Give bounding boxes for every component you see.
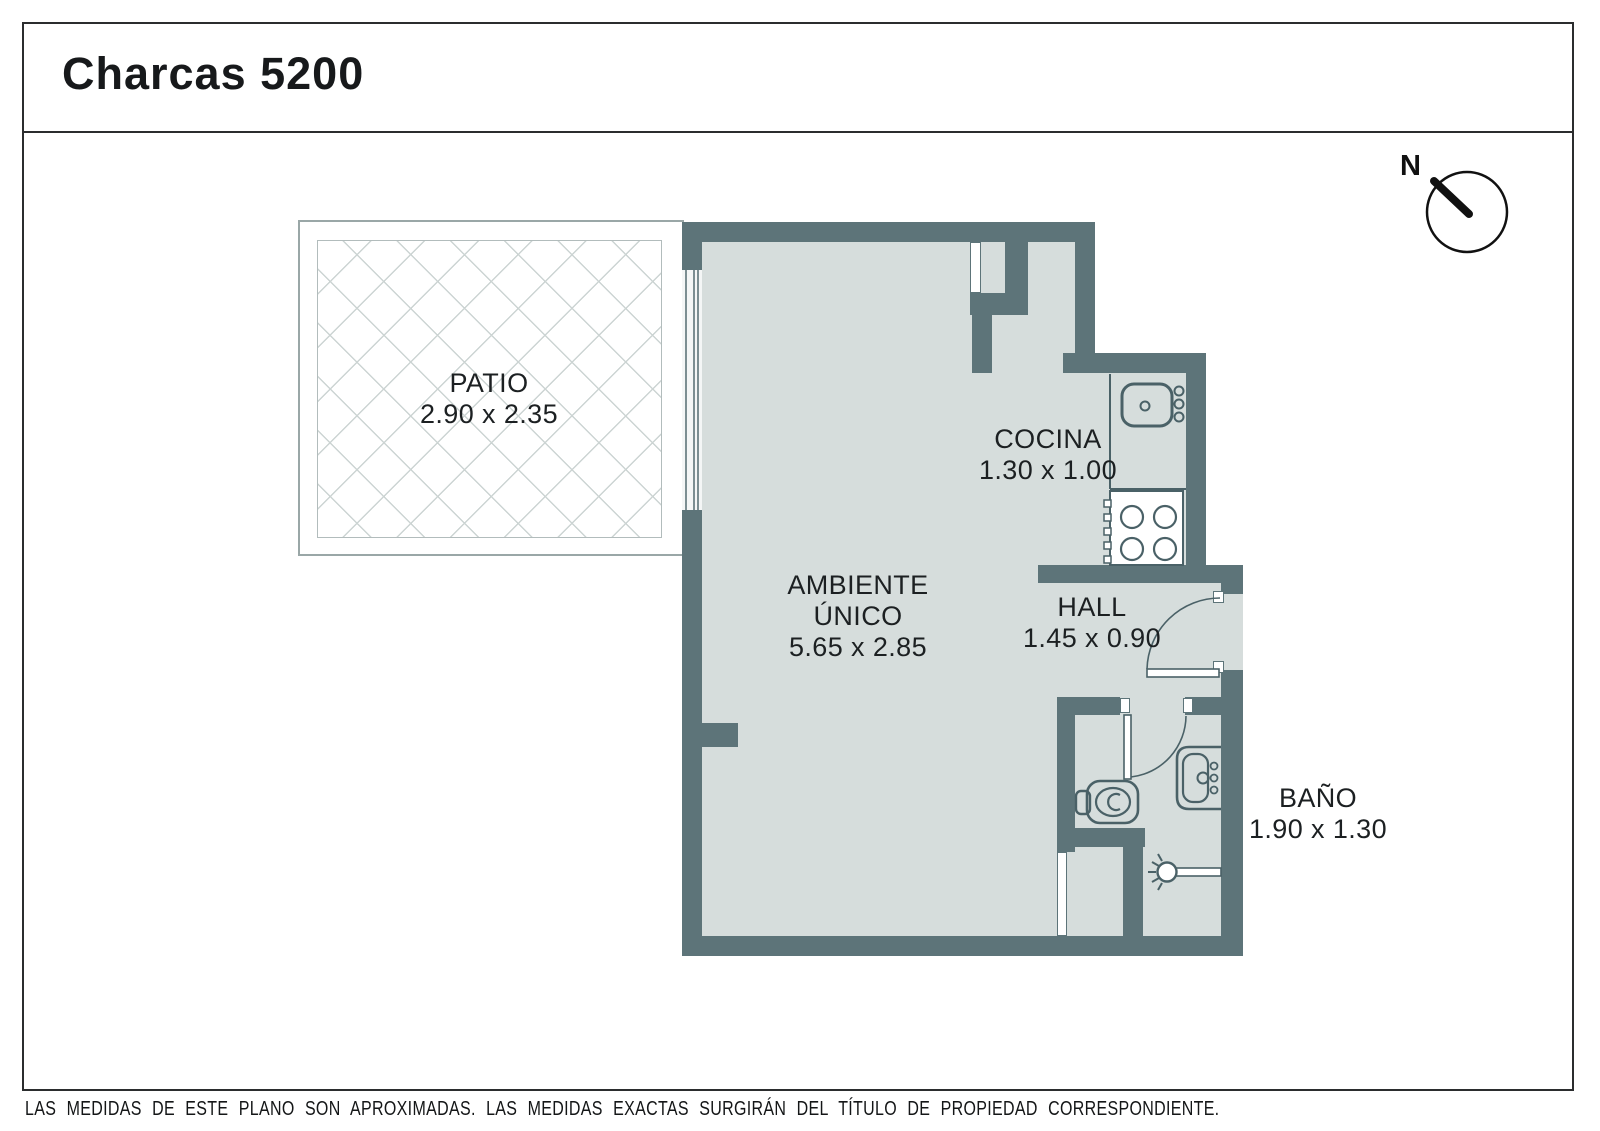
bano-name: BAÑO xyxy=(1218,783,1418,814)
wall-kitchen-right xyxy=(1186,373,1206,583)
footer: LAS MEDIDAS DE ESTE PLANO SON APROXIMADA… xyxy=(25,1098,1575,1121)
wall-entry-nook-c xyxy=(972,315,992,373)
wall-stub xyxy=(702,723,738,747)
cocina-dims: 1.30 x 1.00 xyxy=(948,455,1148,486)
bath-door-jamb-right xyxy=(1183,698,1193,713)
room-label-cocina: COCINA 1.30 x 1.00 xyxy=(948,424,1148,486)
wall-left-upper xyxy=(682,222,702,270)
cocina-name: COCINA xyxy=(948,424,1148,455)
room-label-bano: BAÑO 1.90 x 1.30 xyxy=(1218,783,1418,845)
wall-toilet-niche-bottom xyxy=(1057,828,1145,847)
room-label-ambiente-unico: AMBIENTE ÚNICO 5.65 x 2.85 xyxy=(758,570,958,663)
wall-kitchen-top xyxy=(1063,353,1206,373)
entry-door-jamb-bottom xyxy=(1213,661,1224,673)
ambiente-name-line2: ÚNICO xyxy=(758,601,958,632)
bano-dims: 1.90 x 1.30 xyxy=(1218,814,1418,845)
wall-hall-top xyxy=(1038,565,1243,583)
hall-dims: 1.45 x 0.90 xyxy=(992,623,1192,654)
entry-nook-door-leaf xyxy=(970,242,981,293)
wall-bottom xyxy=(682,936,1243,956)
page-title: Charcas 5200 xyxy=(62,48,364,100)
wall-entry-nook-a xyxy=(1005,242,1028,295)
ambiente-name-line1: AMBIENTE xyxy=(758,570,958,601)
header-divider xyxy=(22,131,1574,133)
floor-closet xyxy=(1067,852,1123,936)
window xyxy=(682,270,702,510)
patio-name: PATIO xyxy=(389,368,589,399)
wall-top xyxy=(682,222,1095,242)
hall-name: HALL xyxy=(992,592,1192,623)
floor-entry-doorway xyxy=(1221,594,1243,670)
room-label-hall: HALL 1.45 x 0.90 xyxy=(992,592,1192,654)
wall-left-lower xyxy=(682,510,702,956)
patio-dims: 2.90 x 2.35 xyxy=(389,399,589,430)
room-label-patio: PATIO 2.90 x 2.35 xyxy=(389,368,589,430)
entry-door-jamb-top xyxy=(1213,591,1224,603)
compass-north-label: N xyxy=(1400,150,1421,183)
bath-door-jamb-left xyxy=(1120,698,1130,713)
wall-bath-top-left xyxy=(1057,697,1120,715)
wall-closet-right xyxy=(1123,847,1143,936)
closet-opening xyxy=(1057,852,1067,936)
wall-entry-nook-b xyxy=(970,293,1028,315)
ambiente-dims: 5.65 x 2.85 xyxy=(758,632,958,663)
wall-right-above-door xyxy=(1221,583,1243,594)
footer-disclaimer: LAS MEDIDAS DE ESTE PLANO SON APROXIMADA… xyxy=(25,1098,1219,1121)
